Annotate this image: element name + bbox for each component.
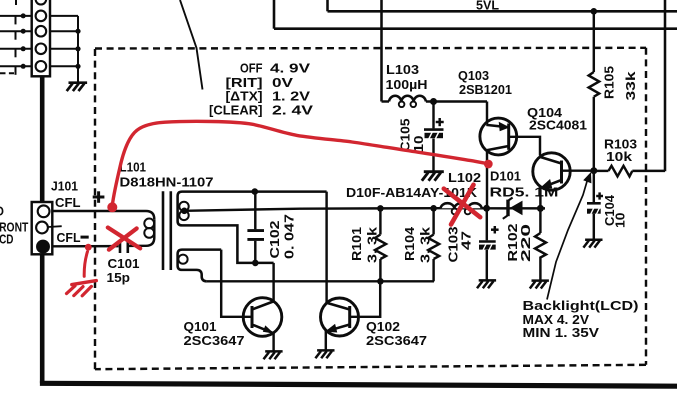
svg-text:5VL: 5VL xyxy=(476,0,499,13)
svg-text:L101: L101 xyxy=(120,159,147,174)
svg-text:Q101: Q101 xyxy=(184,319,217,334)
svg-text:MIN 1. 35V: MIN 1. 35V xyxy=(523,325,600,340)
svg-text:10: 10 xyxy=(613,213,628,229)
svg-text:2SC3647: 2SC3647 xyxy=(184,333,245,348)
svg-text:3. 3k: 3. 3k xyxy=(365,226,380,263)
svg-text:Q102: Q102 xyxy=(366,319,400,334)
svg-text:33k: 33k xyxy=(623,70,638,100)
svg-text:3. 3k: 3. 3k xyxy=(418,226,433,263)
svg-text:2. 4V: 2. 4V xyxy=(272,103,313,118)
svg-text:CFL: CFL xyxy=(57,230,81,245)
svg-text:L103: L103 xyxy=(386,62,419,77)
svg-text:0. 047: 0. 047 xyxy=(282,214,297,259)
svg-text:2SB1201: 2SB1201 xyxy=(459,82,512,97)
svg-text:D101: D101 xyxy=(490,169,521,184)
svg-text:R105: R105 xyxy=(602,66,617,99)
svg-text:OFF: OFF xyxy=(240,61,263,76)
svg-text:220: 220 xyxy=(518,224,533,262)
svg-text:[ΔTX]: [ΔTX] xyxy=(226,88,263,103)
svg-text:L102: L102 xyxy=(448,170,481,185)
svg-text:10k: 10k xyxy=(606,149,633,164)
svg-text:R104: R104 xyxy=(402,226,417,261)
svg-text:[CLEAR]: [CLEAR] xyxy=(209,103,263,118)
svg-text:R101: R101 xyxy=(349,227,364,261)
svg-text:TO: TO xyxy=(0,203,4,218)
svg-text:Backlight(LCD): Backlight(LCD) xyxy=(523,298,639,313)
svg-text:J101: J101 xyxy=(51,179,78,194)
svg-text:100µH: 100µH xyxy=(386,77,428,92)
svg-text:LCD: LCD xyxy=(0,231,14,246)
svg-text:47: 47 xyxy=(459,231,474,250)
svg-text:2SC3647: 2SC3647 xyxy=(366,333,427,348)
svg-text:4. 9V: 4. 9V xyxy=(270,61,310,76)
svg-text:15p: 15p xyxy=(107,270,131,285)
svg-text:C102: C102 xyxy=(267,221,282,259)
svg-text:Q103: Q103 xyxy=(458,68,489,83)
svg-text:1. 2V: 1. 2V xyxy=(272,88,310,103)
svg-text:2SC4081: 2SC4081 xyxy=(529,117,587,132)
svg-text:CFL: CFL xyxy=(55,195,81,210)
svg-text:D818HN-1107: D818HN-1107 xyxy=(120,175,214,190)
svg-text:C101: C101 xyxy=(108,256,140,271)
